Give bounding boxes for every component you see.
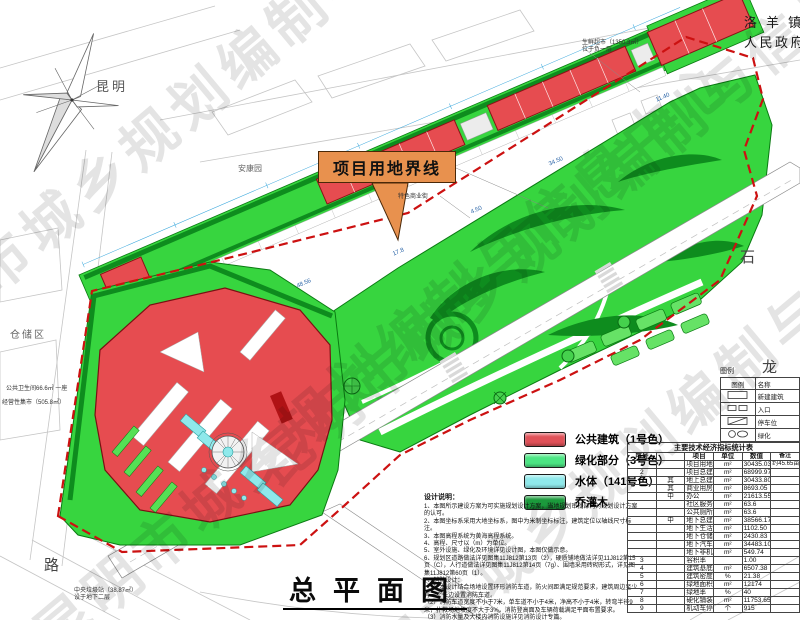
indicator-row: 其 商业用房 m² 8693.05: [628, 485, 800, 493]
indicator-row: 中 办公 m² 21613.55: [628, 493, 800, 501]
indicator-row: 5 建筑密度 % 21.38: [628, 573, 800, 581]
note-line: 3、本图高程系统为黄海高程系统。: [424, 534, 638, 541]
indicator-row: 其 地上总建筑面积 m² 30433.80: [628, 477, 800, 485]
indicator-row: 4 建筑基底面积 m² 6507.38: [628, 565, 800, 573]
indicator-row: 地下生活超市 m² 1102.50: [628, 525, 800, 533]
indicator-row: 公共厕所 m² 63.6: [628, 509, 800, 517]
new-building-icon: [726, 390, 750, 400]
annotation-refuse-station: 中央垃圾站（38.87㎡）: [74, 588, 137, 595]
annotation-public-toilet: 公共卫生间66.6㎡ 一座: [6, 386, 67, 393]
area-label-ankang: 安康园: [238, 163, 262, 174]
indicator-row: 中 地下总建筑面积 m² 38566.17: [628, 517, 800, 525]
parking-icon: [726, 416, 750, 426]
compass-icon: [2, 19, 138, 191]
indicator-row: 8 硬化铺装面积 m² 11753.65: [628, 597, 800, 605]
indicator-row: 地下非机动车库 m² 549.74: [628, 549, 800, 557]
road-label-shi: 石: [740, 246, 755, 267]
area-label-storage: 仓储区: [10, 326, 46, 341]
symbol-header-row: 图例 名称: [721, 378, 800, 390]
indicators-table: 主要技术经济指标统计表 序号 项目 单位 数值 备注 1 项目用地面积 m² 3…: [627, 442, 800, 613]
road-label-lu: 路: [44, 554, 59, 575]
indicator-row: 地下汽车库 m² 34483.10: [628, 541, 800, 549]
symbol-row-new-building: 新建建筑: [721, 390, 800, 403]
symbol-legend-title: 图例: [720, 366, 800, 376]
annotation-market: 经营性集市（505.8㎡）: [2, 400, 65, 407]
indicator-row: 1 项目用地面积 m² 30435.03 约45.65亩: [628, 461, 800, 469]
annotation-supermarket: 生鲜超市（1350.3㎡）: [582, 40, 642, 47]
indicator-row: 3 容积率 1.00: [628, 557, 800, 565]
symbol-row-greening: 绿化: [721, 429, 800, 442]
callout-tail: [372, 183, 408, 240]
master-plan-sheet: 昆明市城乡规划编制与信息中心 昆明市城乡规划编制与信息中心 昆明市城乡规划编制与…: [0, 0, 800, 620]
note-line: 6、规划区道路做法详见图集11J812第13页（2），硬质铺地做法详见11J81…: [424, 556, 638, 578]
market-complex: [60, 262, 345, 545]
symbol-row-entrance: 入口: [721, 403, 800, 416]
indicator-row: 2 项目总建筑面积 m² 68999.97: [628, 469, 800, 477]
government-label-line1: 洛羊镇: [744, 12, 800, 31]
plan-title: 总平面图: [283, 576, 467, 610]
annotation-supermarket-floor: 位于负一层: [582, 47, 612, 54]
government-label-line2: 人民政府: [744, 32, 800, 51]
legend-swatch-cyan: [524, 474, 566, 489]
indicator-row: 7 绿地率 % 40: [628, 589, 800, 597]
indicator-row: 9 机动车停车位 个 915: [628, 605, 800, 613]
notes-title: 设计说明：: [424, 492, 638, 502]
annotation-commercial-street: 特色商业街: [398, 194, 428, 201]
annotation-refuse-floor: 设于地下二层: [74, 595, 110, 602]
legend-swatch-green: [524, 453, 566, 468]
circular-plaza: [209, 433, 247, 471]
note-line: （3）消防水量及大楼内消防设施详见消防设计专篇。: [424, 615, 638, 620]
note-line: 2、本图坐标系采用大地坐标系，图中为米制坐标标注，建筑定位以轴线尺寸标注。: [424, 519, 638, 534]
indicator-row: 社区服务点 m² 63.6: [628, 501, 800, 509]
indicators-table-title: 主要技术经济指标统计表: [628, 443, 800, 453]
symbol-legend: 图例 图例 名称 新建建筑 入口 停车位: [720, 366, 800, 442]
legend-swatch-red: [524, 432, 566, 447]
city-label: 昆明: [96, 76, 128, 95]
symbol-row-parking: 停车位: [721, 416, 800, 429]
note-line: 5、室外设施、绿化及环境详见设计图，本图仅做示意。: [424, 548, 638, 555]
indicators-table-header: 序号 项目 单位 数值 备注: [628, 453, 800, 461]
indicator-row: 6 绿地面积 m² 12174: [628, 581, 800, 589]
boundary-callout: 项目用地界线: [318, 151, 456, 183]
note-line: 1、本图所示建设方案为可实施规划设计方案，当地规划审批部门对规划设计方案的认可。: [424, 504, 638, 519]
greening-icon: [726, 429, 750, 439]
entrance-icon: [726, 403, 750, 413]
indicator-row: 地下仓储 m² 2430.83: [628, 533, 800, 541]
